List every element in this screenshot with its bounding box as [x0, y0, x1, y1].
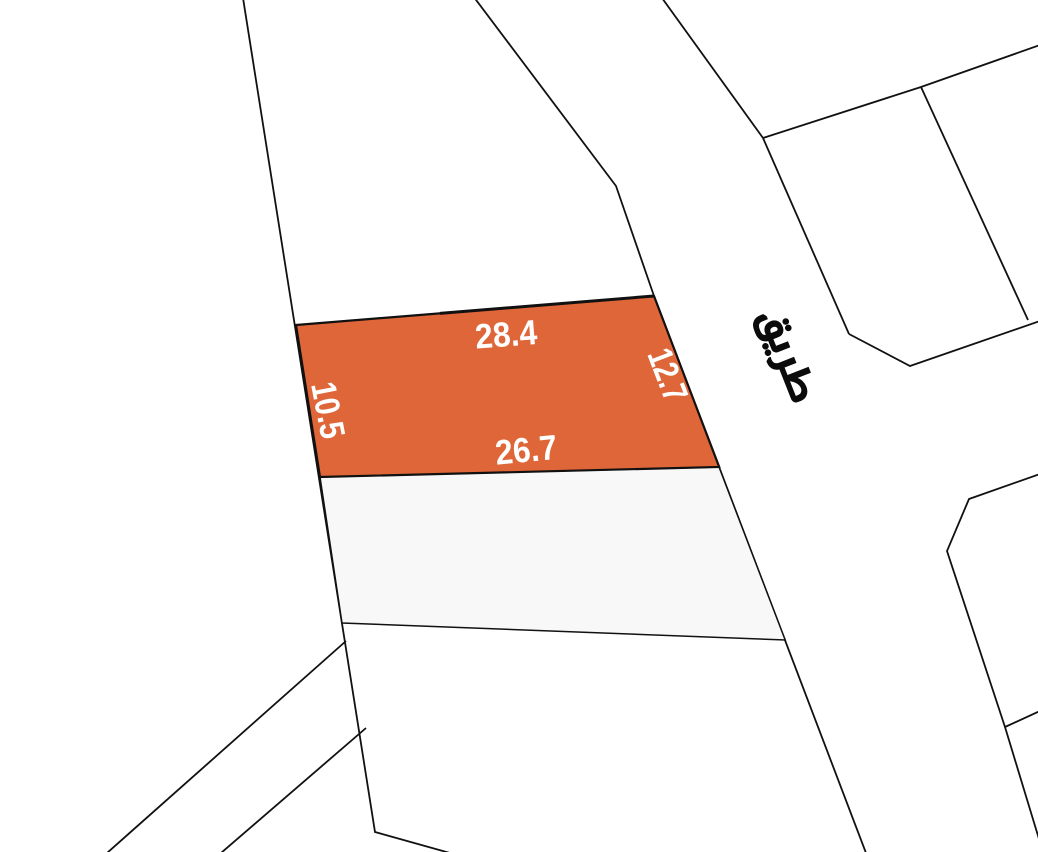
- svg-text:28.4: 28.4: [474, 313, 539, 357]
- svg-text:26.7: 26.7: [493, 428, 558, 473]
